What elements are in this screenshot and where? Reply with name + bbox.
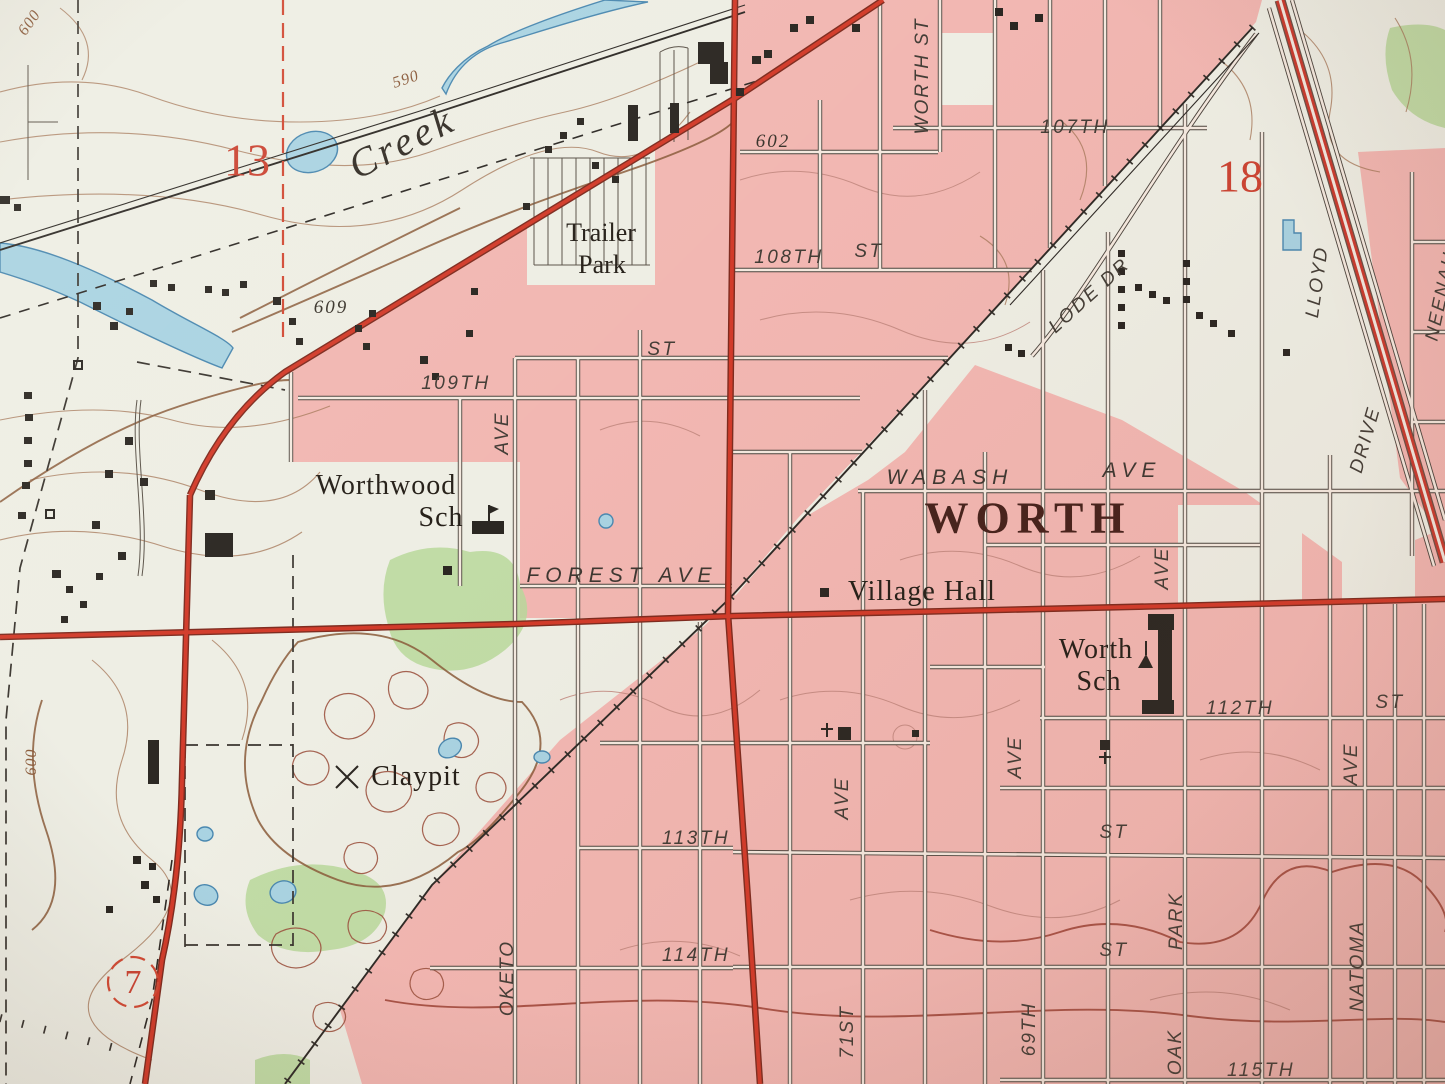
map-label-worthwood-sch-2: Sch [419, 502, 464, 534]
map-label-worthwood-sch-1: Worthwood [316, 470, 457, 502]
map-label-worth-sch-1: Worth [1059, 634, 1133, 666]
map-label-ave-oketo-n: AVE [492, 412, 514, 455]
worth-school-building [1148, 614, 1174, 630]
map-label-st-109th: 109TH [421, 373, 491, 395]
map-label-st-109th-st: ST [647, 339, 676, 361]
map-label-spot-609: 609 [314, 297, 349, 319]
map-label-st-107th: 107TH [1040, 117, 1110, 139]
map-label-contour-600-left: 600 [23, 749, 41, 776]
map-label-ave-71st-n: AVE [832, 777, 854, 820]
map-label-st-113th: 113TH [662, 828, 730, 850]
map-label-spot-602: 602 [756, 131, 791, 153]
map-label-ave-oak-park-1: OAK [1165, 1029, 1187, 1075]
map-label-route-7: 7 [125, 964, 142, 1002]
map-label-trailer-park-1: Trailer [566, 218, 636, 248]
map-label-st-112th-st: ST [1375, 692, 1404, 714]
map-label-town-worth: WORTH [924, 493, 1131, 544]
map-label-st-wabash-ave: AVE [1103, 459, 1162, 483]
church-building [838, 727, 851, 740]
map-label-ave-home: AVE [1152, 547, 1174, 590]
map-label-ave-oak-park-2: PARK [1166, 892, 1188, 950]
map-label-st-114th: 114TH [662, 945, 730, 967]
map-label-st-113th-st: ST [1099, 822, 1128, 844]
map-label-ave-oketo: OKETO [497, 940, 519, 1016]
worthwood-school-building [472, 521, 504, 534]
map-label-claypit: Claypit [371, 761, 460, 793]
map-label-village-hall: Village Hall [848, 576, 996, 608]
map-label-section-18: 18 [1217, 150, 1263, 203]
topo-map-photo: 600590Creek13609602TrailerPark108THSTWOR… [0, 0, 1445, 1084]
map-label-section-13: 13 [224, 134, 270, 187]
map-label-st-115th: 115TH [1227, 1060, 1295, 1082]
church-building-2 [1100, 740, 1110, 750]
map-label-ave-natoma-n: AVE [1341, 743, 1363, 786]
village-hall-building [820, 588, 829, 597]
map-label-ave-69th: 69TH [1019, 1002, 1041, 1056]
map-label-worth-sch-2: Sch [1077, 666, 1122, 698]
map-label-st-114th-st: ST [1099, 940, 1128, 962]
map-label-st-112th: 112TH [1206, 698, 1274, 720]
map-label-st-worth-st: WORTH ST [912, 18, 934, 135]
map-label-trailer-park-2: Park [578, 250, 626, 280]
map-label-ave-71st: 71ST [837, 1005, 859, 1058]
map-label-st-forest-ave: FOREST AVE [526, 564, 717, 588]
map-label-ave-natoma: NATOMA [1347, 920, 1369, 1012]
map-label-ave-69th-n: AVE [1005, 736, 1027, 779]
map-label-st-108th: 108TH [754, 247, 824, 269]
map-label-st-wabash: WABASH [887, 466, 1014, 490]
map-label-st-108th-st: ST [854, 241, 883, 263]
